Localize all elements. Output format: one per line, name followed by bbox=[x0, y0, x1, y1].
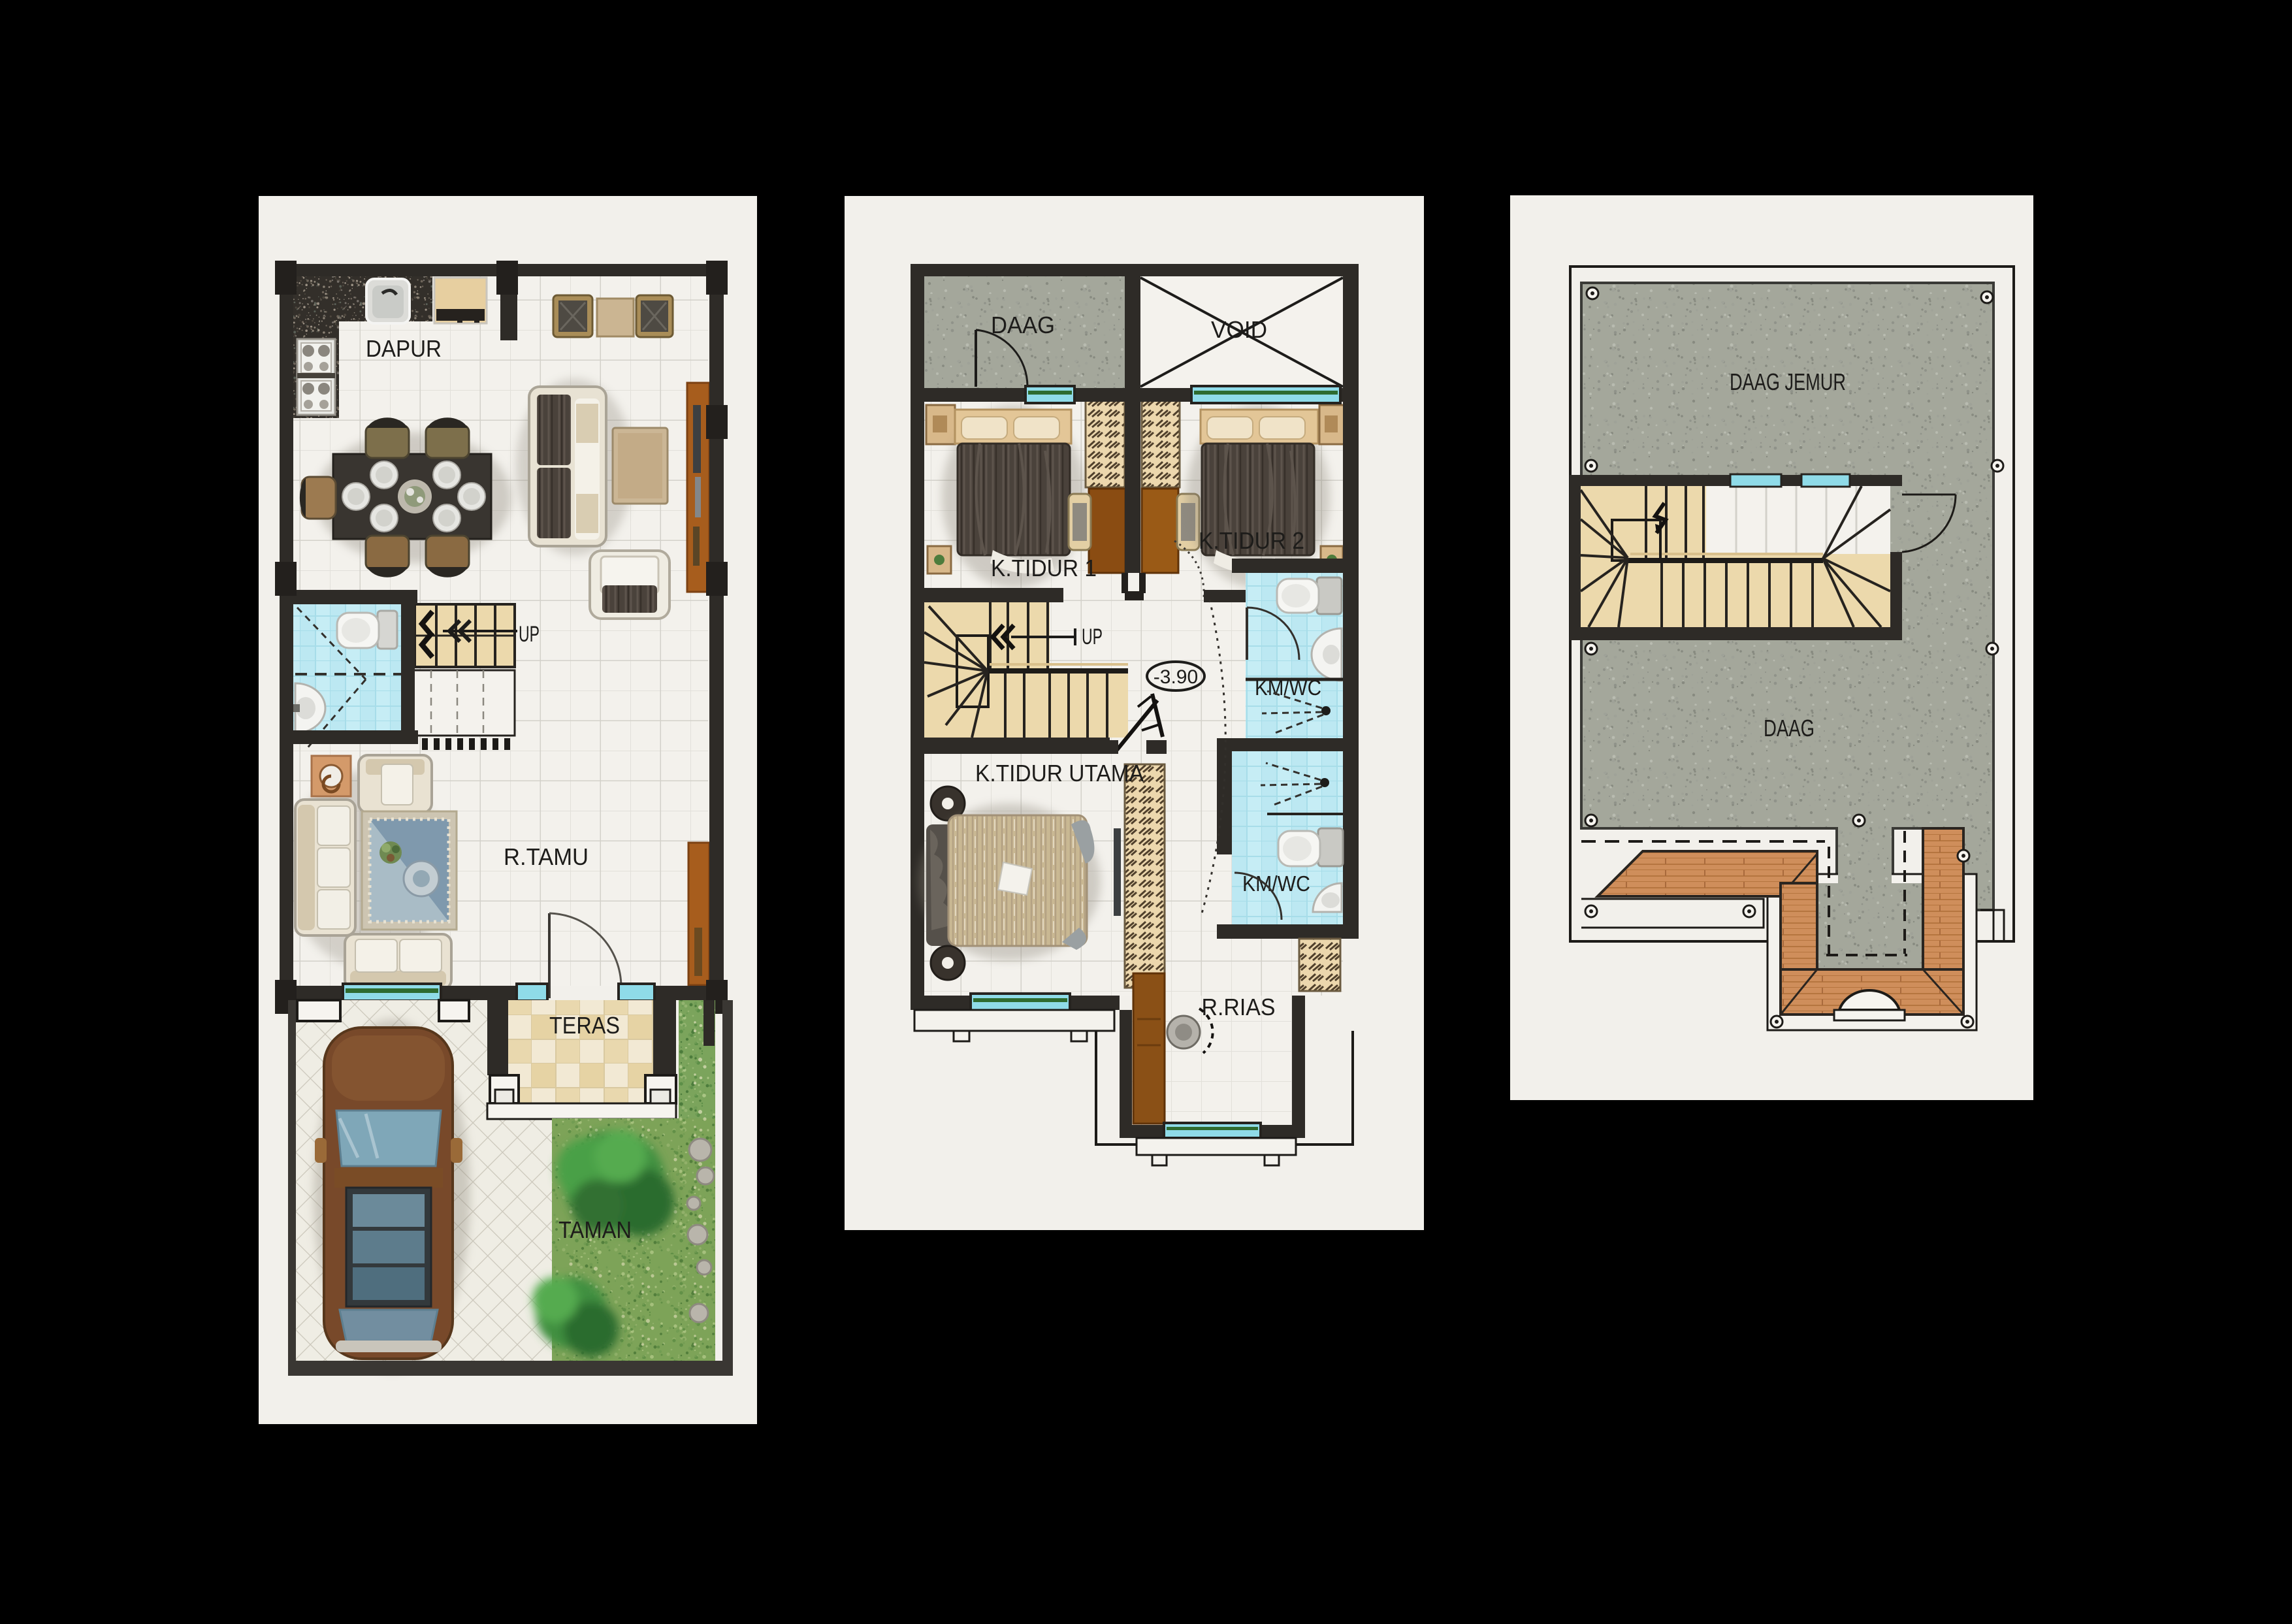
svg-text:K.TIDUR 1: K.TIDUR 1 bbox=[991, 555, 1097, 581]
svg-text:UP: UP bbox=[519, 622, 540, 647]
svg-text:R.TAMU: R.TAMU bbox=[504, 843, 589, 870]
svg-text:K.TIDUR UTAMA: K.TIDUR UTAMA bbox=[975, 760, 1144, 787]
svg-text:DAPUR: DAPUR bbox=[366, 335, 442, 362]
svg-text:UP: UP bbox=[1082, 625, 1103, 649]
svg-text:TERAS: TERAS bbox=[549, 1012, 620, 1039]
svg-text:TAMAN: TAMAN bbox=[558, 1216, 632, 1243]
svg-text:KM/WC: KM/WC bbox=[1255, 675, 1321, 700]
svg-text:R.RIAS: R.RIAS bbox=[1202, 994, 1276, 1020]
svg-text:DAAG: DAAG bbox=[991, 312, 1055, 338]
svg-text:KM/WC: KM/WC bbox=[1242, 871, 1310, 896]
svg-text:-3.90: -3.90 bbox=[1154, 666, 1198, 688]
svg-text:VOID: VOID bbox=[1211, 316, 1267, 343]
svg-text:K.TIDUR 2: K.TIDUR 2 bbox=[1199, 527, 1304, 554]
svg-text:DAAG JEMUR: DAAG JEMUR bbox=[1730, 368, 1846, 395]
svg-text:DAAG: DAAG bbox=[1764, 715, 1815, 741]
